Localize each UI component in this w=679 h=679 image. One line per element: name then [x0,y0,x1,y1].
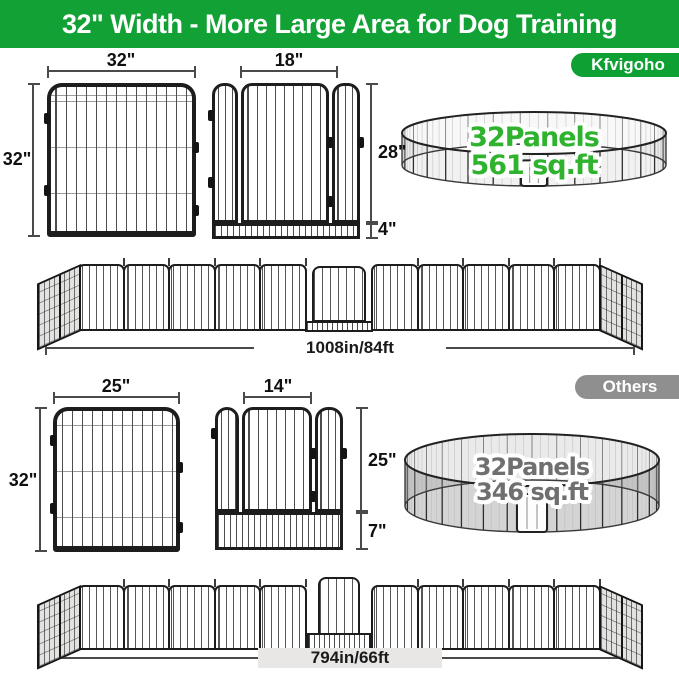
row-panel [259,264,307,331]
hinge-icon [50,503,56,514]
fence-row-panels [79,585,601,650]
hinge-icon [341,448,347,459]
row-door-group [305,264,373,331]
row-panel [168,585,216,650]
row-panel [214,585,262,650]
hinge-icon [50,435,56,446]
hinge-icon [310,448,316,459]
row-panel [123,264,171,331]
hinge-icon [193,205,199,216]
pen-area: 561 sq.ft [414,152,654,180]
door-side-panel-graphic [315,407,343,512]
row-door [318,577,360,635]
bottom-bar-label: 4" [378,219,418,240]
door-width-label: 14" [230,376,326,397]
hinge-icon [177,522,183,533]
panel-width-label: 32" [73,50,169,71]
door-bottom-bar-graphic [215,512,343,550]
fence-panel-graphic [47,83,196,237]
row-door [312,266,366,322]
fence-row-panels [79,264,601,331]
row-panel [462,264,510,331]
fence-panel-graphic [53,407,180,552]
others-badge: Others [575,375,679,399]
row-length-label: 1008in/84ft [254,338,446,358]
door-panel-graphic [241,83,329,223]
panel-height-label: 32" [0,149,34,170]
pen-area: 346 sq.ft [412,480,652,505]
row-panel [371,264,419,331]
hinge-icon [310,491,316,502]
fence-row-illustration [35,243,645,331]
hinge-icon [177,462,183,473]
bottom-bar-dimension-line [360,512,362,550]
hinge-icon [44,185,50,196]
door-side-panel-graphic [215,407,239,512]
panel-height-label: 32" [6,470,40,491]
row-panel [77,264,125,331]
hinge-icon [358,137,364,148]
hinge-icon [327,196,333,207]
hinge-icon [208,110,214,121]
door-side-panel-graphic [332,83,360,223]
hinge-icon [211,428,217,439]
row-panel [259,585,307,650]
panel-width-label: 25" [68,376,164,397]
row-length-label: 794in/66ft [258,648,442,668]
row-door-group [305,585,373,650]
hinge-icon [327,137,333,148]
door-panel-graphic [242,407,312,512]
fence-row-illustration [35,563,645,650]
product-comparison-infographic: 32" Width - More Large Area for Dog Trai… [0,0,679,679]
door-height-label: 25" [368,450,412,471]
door-side-panel-graphic [212,83,238,223]
bottom-bar-dimension-line [370,223,372,239]
row-panel [77,585,125,650]
bottom-bar-label: 7" [368,521,408,542]
hinge-icon [193,142,199,153]
row-panel [508,585,556,650]
row-panel [214,264,262,331]
row-panel [168,264,216,331]
door-height-dimension-line [370,83,372,223]
header-banner: 32" Width - More Large Area for Dog Trai… [0,0,679,48]
row-panel [553,264,601,331]
row-panel [417,264,465,331]
page-title: 32" Width - More Large Area for Dog Trai… [62,9,617,40]
row-panel [462,585,510,650]
row-panel [508,264,556,331]
row-panel [123,585,171,650]
brand-badge: Kfvigoho [571,53,679,77]
row-panel [371,585,419,650]
pen-panels-count: 32Panels [412,455,652,480]
hinge-icon [44,113,50,124]
door-bottom-bar-graphic [212,223,360,239]
row-panel [553,585,601,650]
door-height-dimension-line [360,407,362,512]
row-door-step [305,321,373,332]
hinge-icon [208,177,214,188]
row-panel [417,585,465,650]
pen-panels-count: 32Panels [414,124,654,152]
door-width-label: 18" [241,50,337,71]
